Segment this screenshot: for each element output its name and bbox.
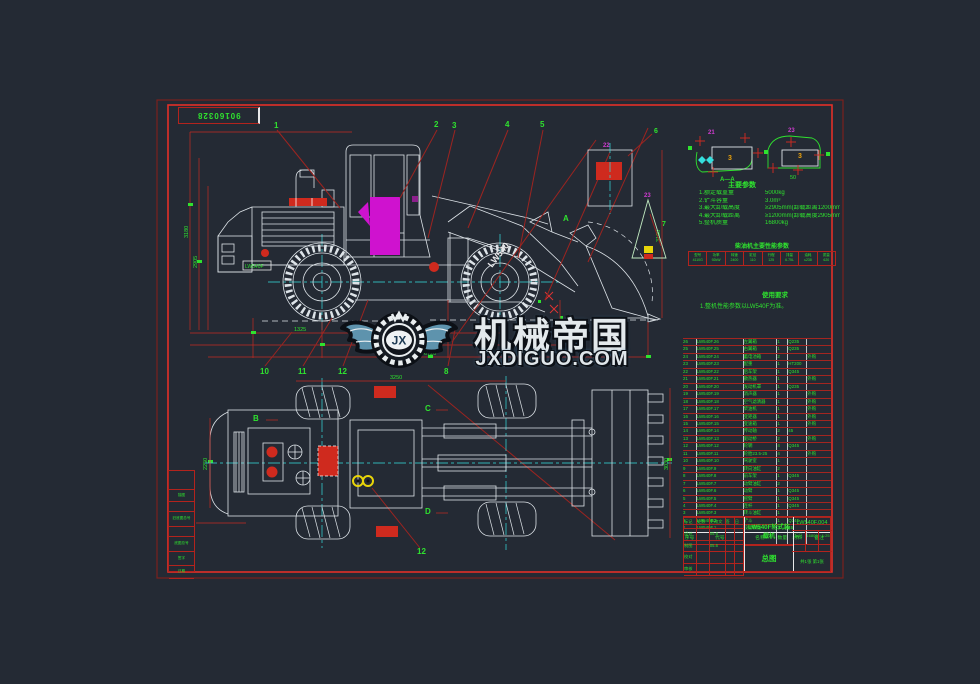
parameter-row: 3.最大卸载高度≥2905mm(卸载距离1200mm): [699, 205, 840, 213]
product-name: LW540F轮式装载机: [745, 517, 793, 546]
balloon-numbers: 1 2 3 4 5 10 11 12 8 A 12: [260, 120, 569, 556]
margin-strip-cell: [169, 502, 194, 512]
svg-text:23: 23: [788, 128, 795, 134]
balloon-10: 10: [260, 367, 269, 376]
margin-strip: 描图旧底图总号底图总号签字日期: [168, 470, 195, 572]
margin-strip-cell: [169, 471, 194, 490]
parameter-row: 4.最大卸载距离≥1200mm(卸载高度2905mm): [699, 213, 840, 221]
svg-text:1325: 1325: [294, 327, 306, 333]
bom-row: 23LW540F.23配重1HT200: [683, 360, 831, 367]
drawing-number: LW540F.004: [792, 517, 832, 531]
detail2-label: 23: [644, 193, 651, 199]
leader-lines: [265, 128, 648, 548]
sheet-count: 共1张 第1张: [792, 552, 832, 571]
engine-table-cell: 缸径110: [744, 252, 762, 265]
engine-table-cell: 排量6.75L: [781, 252, 799, 265]
detail4-num: 3: [798, 153, 802, 160]
svg-text:2905: 2905: [193, 256, 199, 268]
parameters-list: 1.额定载重量5000kg2.铲斗容量3.0m³3.最大卸载高度≥2905mm(…: [699, 190, 840, 228]
bom-row: 24LW540F.24蓄电池箱2外购: [683, 353, 831, 360]
label-D: D: [425, 507, 431, 516]
parameters-title: 主要参数: [707, 180, 777, 190]
detail-profile-1: 3 21 A—A: [688, 130, 768, 183]
balloon-12: 12: [338, 367, 347, 376]
engine-table-cell: 型号4110G: [689, 252, 707, 265]
bom-table: 26LW540F.26左翼箱1Q23525LW540F.25右翼箱1Q23524…: [683, 338, 831, 545]
bom-rows: 26LW540F.26左翼箱1Q23525LW540F.25右翼箱1Q23524…: [683, 338, 831, 532]
parameter-row: 5.整机质量16800kg: [699, 220, 840, 228]
view-name: 总图: [745, 546, 793, 571]
title-block: 标记处数更改文件号签字日期设计05.6制图05.6校对审核 LW540F轮式装载…: [683, 516, 831, 572]
bom-row: 13LW540F.13驱动桥2外购: [683, 435, 831, 442]
signature-row: 标记处数更改文件号签字日期: [684, 517, 744, 529]
side-view: [218, 145, 660, 332]
cad-drawing: 1 2 3 4 5 10 11 12 8 A 12 1325 2760 6720…: [0, 0, 980, 684]
top-view: [205, 376, 672, 550]
detail2-balloon: 7: [662, 221, 666, 228]
bom-row: 14LW540F.14传动轴245: [683, 427, 831, 434]
engine-table-cell: 转速2400: [726, 252, 744, 265]
side-dimensions: [190, 132, 662, 523]
bom-row: 8LW540F.8前车架1Q345: [683, 472, 831, 479]
detail1-balloon: 6: [654, 128, 658, 135]
sheet-number-box: 90160328: [178, 107, 260, 124]
cad-canvas: 1 2 3 4 5 10 11 12 8 A 12 1325 2760 6720…: [0, 0, 980, 684]
balloon-5: 5: [540, 120, 545, 129]
bom-row: 22LW540F.22后车架1Q345: [683, 368, 831, 375]
bom-row: 7LW540F.7动臂油缸2: [683, 480, 831, 487]
hood-decal: LW540F: [245, 264, 264, 270]
bom-row: 26LW540F.26左翼箱1Q235: [683, 338, 831, 345]
usage-notes-title: 使用要求: [730, 289, 820, 299]
balloon-11: 11: [298, 367, 307, 376]
usage-note-line: 1.整机性能参数以LW540F为准。: [700, 301, 840, 310]
margin-strip-cell: 描图: [169, 490, 194, 502]
bom-row: 15LW540F.15变速箱1外购: [683, 420, 831, 427]
top-view-marks: [210, 381, 670, 538]
engine-table: 柴油机主要性能参数 型号4110G功率92kW转速2400缸径110行程125排…: [688, 241, 836, 266]
bom-row: 16LW540F.16变矩器1外购: [683, 413, 831, 420]
svg-text:2250: 2250: [203, 458, 209, 470]
main-parameters: 主要参数 1.额定载重量5000kg2.铲斗容量3.0m³3.最大卸载高度≥29…: [699, 180, 840, 228]
parameter-row: 2.铲斗容量3.0m³: [699, 198, 840, 206]
sheet-number: 90160328: [197, 111, 241, 120]
engine-table-cell: 行程125: [763, 252, 781, 265]
signature-row: 审核: [684, 564, 744, 576]
detail-profile-2: 3 23 50: [768, 128, 830, 181]
svg-text:3250: 3250: [390, 375, 402, 381]
parameter-row: 1.额定载重量5000kg: [699, 190, 840, 198]
bom-row: 12LW540F.12轮辋4Q345: [683, 442, 831, 449]
label-C: C: [425, 404, 431, 413]
boom-bucket: [432, 196, 660, 322]
bom-row: 25LW540F.25右翼箱1Q235: [683, 345, 831, 352]
mark-label: 标记: [792, 531, 806, 551]
bom-row: 5LW540F.5摇臂1Q345: [683, 495, 831, 502]
balloon-2: 2: [434, 120, 439, 129]
balloon-1: 1: [274, 121, 279, 130]
engine-table-cell: 功率92kW: [707, 252, 725, 265]
svg-text:21: 21: [708, 130, 715, 136]
bom-row: 9LW540F.9转向油缸2: [683, 465, 831, 472]
bom-row: 10LW540F.10驾驶室1: [683, 457, 831, 464]
bom-row: 20LW540F.20发动机罩1Q235: [683, 383, 831, 390]
bom-row: 4LW540F.4连杆1Q345: [683, 502, 831, 509]
usage-notes: 使用要求 1.整机性能参数以LW540F为准。: [700, 289, 840, 310]
detail3-num: 3: [728, 155, 732, 162]
margin-strip-cell: 底图总号: [169, 537, 194, 552]
engine-table-body: 型号4110G功率92kW转速2400缸径110行程125排量6.75L油耗≤2…: [688, 251, 836, 266]
bom-row: 17LW540F.17柴油机1外购: [683, 405, 831, 412]
svg-text:2760: 2760: [356, 339, 368, 345]
signature-row: 制图05.6: [684, 541, 744, 553]
section-a-label: A: [563, 214, 569, 223]
engine-table-cell: 质量620: [818, 252, 835, 265]
svg-text:3030: 3030: [664, 458, 670, 470]
engine-table-title: 柴油机主要性能参数: [688, 241, 836, 250]
label-B: B: [253, 414, 259, 423]
bom-row: 11LW540F.11轮胎23.5-254外购: [683, 450, 831, 457]
bom-row: 6LW540F.6动臂1Q345: [683, 487, 831, 494]
svg-text:6720: 6720: [424, 351, 436, 357]
weight-value: 16800: [806, 531, 820, 551]
dimension-texts: 1325 2760 6720 3180 2905 3100 3250 2250 …: [184, 226, 670, 470]
bom-row: 18LW540F.18空气滤清器1外购: [683, 398, 831, 405]
engine-table-cell: 油耗≤238: [799, 252, 817, 265]
balloon-8: 8: [444, 367, 449, 376]
top-view-letters: B C D: [253, 404, 431, 516]
balloon-3: 3: [452, 121, 457, 130]
margin-strip-cell: 签字: [169, 552, 194, 566]
margin-strip-cell: 旧底图总号: [169, 512, 194, 527]
margin-strip-cell: 日期: [169, 566, 194, 579]
signature-grid: 标记处数更改文件号签字日期设计05.6制图05.6校对审核: [684, 517, 744, 571]
signature-row: 设计05.6: [684, 529, 744, 541]
bom-row: 21LW540F.21散热器1外购: [683, 375, 831, 382]
detail1-label: 22: [603, 143, 610, 149]
margin-strip-cell: [169, 527, 194, 537]
signature-row: 校对: [684, 552, 744, 564]
svg-text:3180: 3180: [184, 226, 190, 238]
scale-value: 1:25: [819, 531, 832, 551]
balloon-4: 4: [505, 120, 510, 129]
bom-row: 19LW540F.19消声器1外购: [683, 390, 831, 397]
balloon-12b: 12: [417, 547, 426, 556]
